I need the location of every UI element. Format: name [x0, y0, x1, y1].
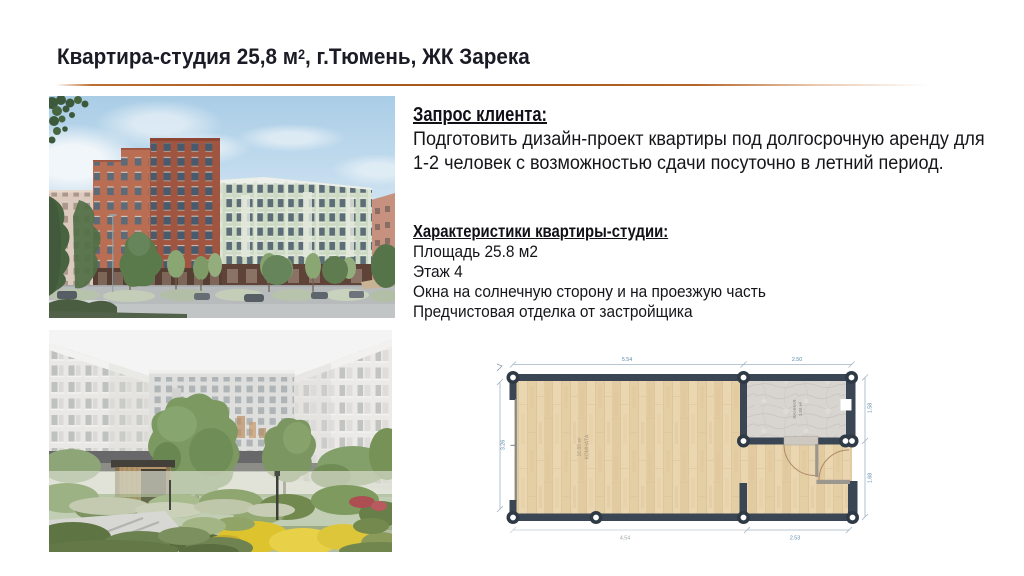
svg-text:КОМНАТА: КОМНАТА [585, 434, 591, 459]
svg-text:2.53: 2.53 [790, 536, 800, 542]
svg-text:3.88 м²: 3.88 м² [798, 401, 803, 416]
svg-text:5.54: 5.54 [622, 357, 632, 363]
svg-text:2.50: 2.50 [792, 357, 802, 363]
svg-text:3.26: 3.26 [501, 440, 507, 450]
svg-text:ВАННАЯ: ВАННАЯ [792, 400, 797, 419]
svg-text:4.54: 4.54 [620, 536, 630, 542]
svg-text:1.68: 1.68 [868, 473, 874, 483]
svg-text:16.86 м²: 16.86 м² [577, 437, 583, 456]
svg-text:1.58: 1.58 [868, 403, 874, 413]
